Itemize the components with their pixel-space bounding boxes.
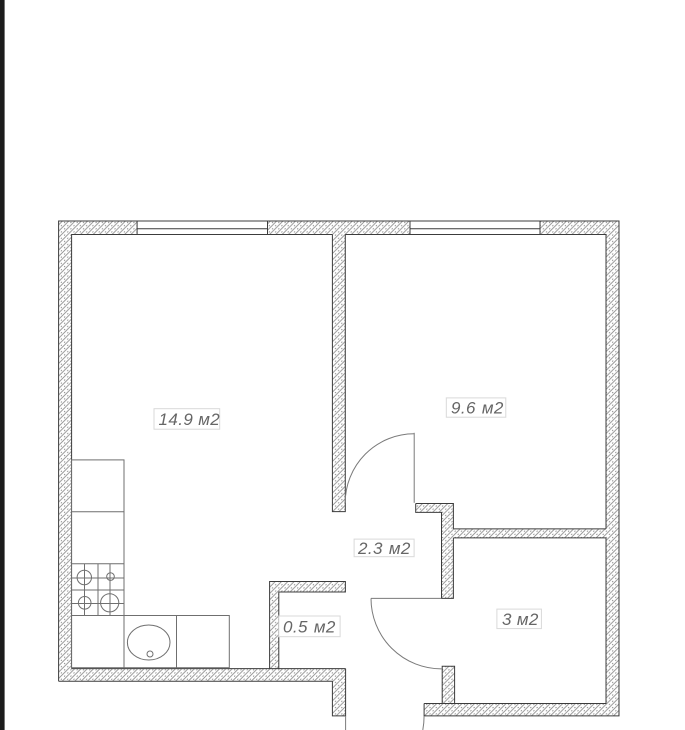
svg-text:3м2: 3м2 [502,610,539,629]
svg-text:14.9м2: 14.9м2 [159,410,221,429]
